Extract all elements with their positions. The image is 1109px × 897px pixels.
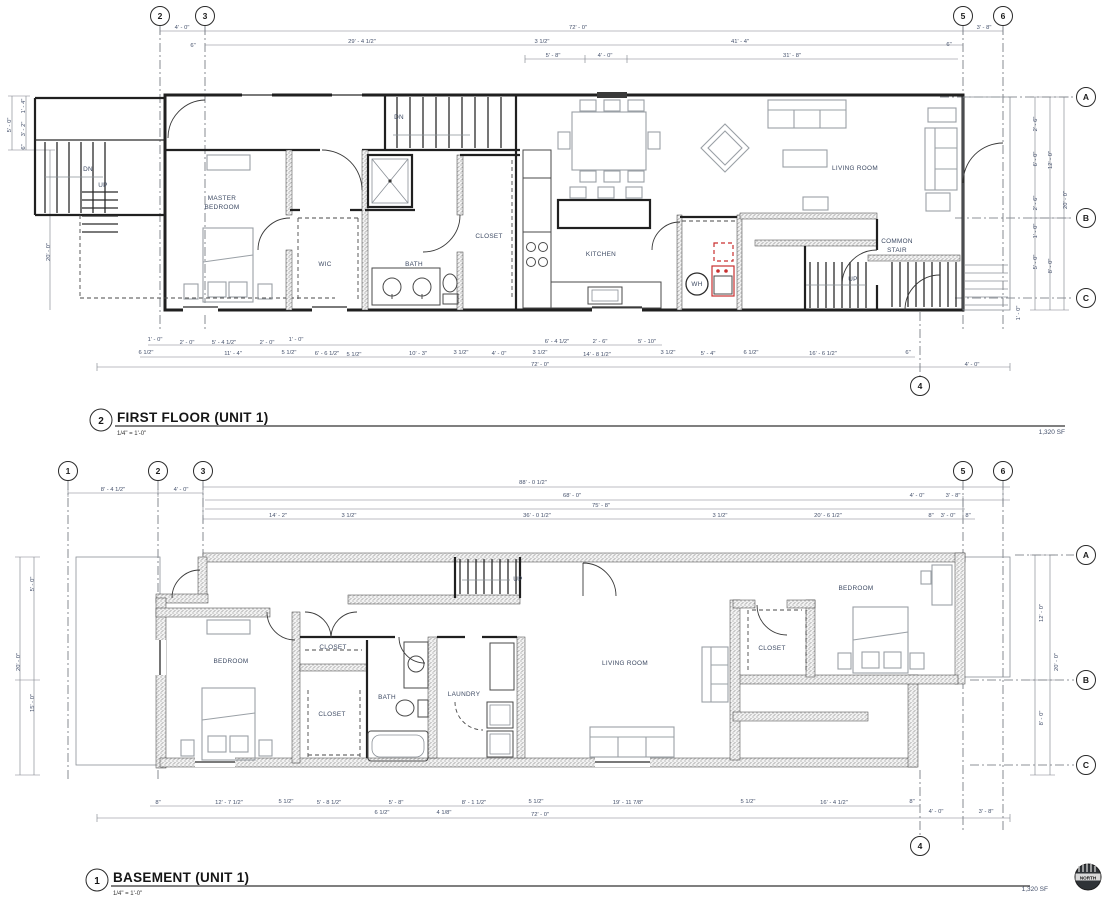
first_floor-dimension: 20' - 0" xyxy=(1063,191,1069,209)
grid-bubble-label-B: B xyxy=(1083,213,1089,223)
first_floor-dimension: 31' - 8" xyxy=(783,53,801,59)
basement-dimension: 20' - 6 1/2" xyxy=(814,513,842,519)
basement-dimension: 4' - 0" xyxy=(910,493,925,499)
first_floor-room-label: LIVING ROOM xyxy=(832,165,878,172)
first_floor-dimension: 5 1/2" xyxy=(347,352,362,358)
utility-room xyxy=(686,243,734,296)
plan-title: FIRST FLOOR (UNIT 1) xyxy=(117,410,269,425)
basement-room-label: BEDROOM xyxy=(213,658,248,665)
first_floor-dimension: 1' - 4" xyxy=(21,99,27,114)
stair-common-up xyxy=(806,262,866,308)
walls-exterior xyxy=(35,95,963,310)
first_floor-dimension: 11' - 4" xyxy=(224,351,242,357)
basement-dimension: 8' - 1 1/2" xyxy=(462,800,486,806)
first_floor-dimension: 72' - 0" xyxy=(531,362,549,368)
basement-dimension: 12' - 0" xyxy=(1039,604,1045,622)
stair-interior-dn xyxy=(393,97,501,148)
first_floor-dimension: 10' - 3" xyxy=(409,351,427,357)
first_floor-dimension: 8' - 0" xyxy=(1048,259,1054,274)
first_floor-dimension: 3' - 2" xyxy=(21,122,27,137)
first_floor-room-label: DN xyxy=(83,166,93,173)
first_floor-room-label: WIC xyxy=(318,261,331,268)
first_floor-dimension: 20' - 0" xyxy=(46,243,52,261)
bath-fixtures xyxy=(372,268,458,305)
dimension-lines xyxy=(8,27,1069,371)
first_floor-dimension: 41' - 4" xyxy=(731,39,749,45)
basement-dimension: 20' - 0" xyxy=(16,653,22,671)
basement-dimension: 3' - 8" xyxy=(979,809,994,815)
basement-dimension: 5 1/2" xyxy=(741,799,756,805)
basement-dimension: 3' - 8" xyxy=(946,493,961,499)
detail-number: 1 xyxy=(94,876,100,887)
bath-fixtures xyxy=(368,642,428,761)
first_floor-dimension: 5' - 4 1/2" xyxy=(212,340,236,346)
first_floor-dimension: 14' - 8 1/2" xyxy=(583,352,611,358)
basement-dimension: 68' - 0" xyxy=(563,493,581,499)
plan-scale: 1/4" = 1'-0" xyxy=(117,431,146,437)
basement-dimension: 5' - 8" xyxy=(389,800,404,806)
basement-title-block: 1 BASEMENT (UNIT 1) 1/4" = 1'-0" 1,320 S… xyxy=(86,869,1048,897)
first_floor-dimension: 6' - 0" xyxy=(1033,152,1039,167)
basement-room-label: CLOSET xyxy=(758,645,785,652)
plan-sheet: 4' - 0"72' - 0"3' - 8"6"29' - 4 1/2"3 1/… xyxy=(0,0,1109,897)
basement-dimension: 14' - 2" xyxy=(269,513,287,519)
basement-dimension: 8' - 4 1/2" xyxy=(101,487,125,493)
first_floor-dimension: 5' - 10" xyxy=(638,339,656,345)
first_floor-dimension: 2' - 6" xyxy=(1033,196,1039,211)
plan-scale: 1/4" = 1'-0" xyxy=(113,891,142,897)
plan-area: 1,320 SF xyxy=(1039,429,1065,436)
first_floor-dimension: 12' - 0" xyxy=(1048,151,1054,169)
basement-room-label: UP xyxy=(513,576,522,583)
first_floor-dimension: 3 1/2" xyxy=(535,39,550,45)
first_floor-dimension: 6" xyxy=(21,144,27,149)
first_floor-dimension: 72' - 0" xyxy=(569,25,587,31)
basement-dimension: 88' - 0 1/2" xyxy=(519,480,547,486)
plan-area: 1,320 SF xyxy=(1022,886,1048,893)
basement-dimension: 72' - 0" xyxy=(531,812,549,818)
kitchen xyxy=(523,100,661,308)
basement-dimension: 5' - 0" xyxy=(30,577,36,592)
first_floor-room-label: UP xyxy=(848,276,857,283)
basement-dimension: 3 1/2" xyxy=(342,513,357,519)
first_floor-dimension: 5' - 0" xyxy=(1033,255,1039,270)
first_floor-room-label: STAIR xyxy=(887,247,907,254)
first_floor-room-label: KITCHEN xyxy=(586,251,616,258)
basement-dimension: 4' - 0" xyxy=(929,809,944,815)
basement-dimension: 4' - 0" xyxy=(174,487,189,493)
first_floor-room-label: COMMON xyxy=(881,238,913,245)
grid-bubble-label-2: 2 xyxy=(158,11,163,21)
grid-bubble-label-2: 2 xyxy=(156,466,161,476)
stair-back-porch xyxy=(892,262,956,307)
first_floor-dimension: 5' - 4" xyxy=(701,351,716,357)
first_floor-room-label: UP xyxy=(98,182,107,189)
basement-dimension: 16' - 4 1/2" xyxy=(820,800,848,806)
first_floor-dimension: 3' - 8" xyxy=(977,25,992,31)
basement-dimension: 12' - 7 1/2" xyxy=(215,800,243,806)
basement-room-label: BATH xyxy=(378,694,396,701)
basement-dimension: 8" xyxy=(928,513,933,519)
grid-bubble-label-5: 5 xyxy=(961,466,966,476)
first_floor-room-label: BEDROOM xyxy=(204,204,239,211)
grid-bubble-label-C: C xyxy=(1083,760,1089,770)
first_floor-room-label: MASTER xyxy=(208,195,237,202)
first-floor-title-block: 2 FIRST FLOOR (UNIT 1) 1/4" = 1'-0" 1,32… xyxy=(90,409,1065,437)
living-room-furniture xyxy=(701,100,957,211)
basement-room-label: CLOSET xyxy=(319,644,346,651)
grid-bubble-label-6: 6 xyxy=(1001,11,1006,21)
first_floor-dimension: 4' - 0" xyxy=(492,351,507,357)
grid-bubble-label-5: 5 xyxy=(961,11,966,21)
first_floor-dimension: 2' - 6" xyxy=(1033,117,1039,132)
basement-dimension: 8" xyxy=(909,799,914,805)
first_floor-dimension: 6' - 4 1/2" xyxy=(545,339,569,345)
grid-bubble-label-1: 1 xyxy=(66,466,71,476)
basement-dimension: 3 1/2" xyxy=(713,513,728,519)
basement-room-label: BEDROOM xyxy=(838,585,873,592)
first_floor-dimension: 16' - 6 1/2" xyxy=(809,351,837,357)
basement-annotations: 8' - 4 1/2"4' - 0"88' - 0 1/2"68' - 0"4'… xyxy=(16,462,1096,856)
bedroom-right-furniture xyxy=(838,565,952,673)
grid-bubble-label-B: B xyxy=(1083,675,1089,685)
bedroom-left-furniture xyxy=(181,620,272,760)
basement-dimension: 8" xyxy=(965,513,970,519)
first_floor-dimension: 1' - 0" xyxy=(1016,306,1022,321)
grid-bubble-label-6: 6 xyxy=(1001,466,1006,476)
first_floor-dimension: 4' - 0" xyxy=(965,362,980,368)
first-floor-plan: 4' - 0"72' - 0"3' - 8"6"29' - 4 1/2"3 1/… xyxy=(7,7,1096,438)
grid-bubble-label-A: A xyxy=(1083,92,1089,102)
basement-room-label: LAUNDRY xyxy=(448,691,481,698)
first_floor-room-label: CLOSET xyxy=(475,233,502,240)
master-bedroom-furniture xyxy=(184,155,272,302)
grid-bubble-label-4: 4 xyxy=(918,381,923,391)
basement-dimension: 3' - 0" xyxy=(941,513,956,519)
plan-title: BASEMENT (UNIT 1) xyxy=(113,870,249,885)
shower xyxy=(368,155,412,207)
first_floor-dimension: 6' - 6 1/2" xyxy=(315,351,339,357)
stair-up xyxy=(460,559,516,594)
basement-dimension: 20' - 0" xyxy=(1054,653,1060,671)
first_floor-dimension: 4' - 0" xyxy=(598,53,613,59)
first_floor-dimension: 1' - 0" xyxy=(289,337,304,343)
basement-dimension: 5' - 8 1/2" xyxy=(317,800,341,806)
north-label: NORTH xyxy=(1080,875,1097,880)
grid-bubble-label-4: 4 xyxy=(918,841,923,851)
basement-dimension: 8' - 0" xyxy=(1039,711,1045,726)
first_floor-dimension: 2' - 0" xyxy=(180,340,195,346)
first_floor-room-label: WH xyxy=(691,281,702,288)
first_floor-dimension: 3 1/2" xyxy=(533,350,548,356)
grid-bubble-label-A: A xyxy=(1083,550,1089,560)
grid-bubble-label-C: C xyxy=(1083,293,1089,303)
basement-dimension: 75' - 8" xyxy=(592,503,610,509)
first_floor-dimension: 5' - 8" xyxy=(546,53,561,59)
first_floor-room-label: DN xyxy=(394,114,404,121)
basement-dimension: 19' - 11 7/8" xyxy=(613,800,643,806)
first_floor-dimension: 4' - 0" xyxy=(175,25,190,31)
grid-bubble-label-3: 3 xyxy=(203,11,208,21)
first_floor-dimension: 6" xyxy=(190,43,195,49)
north-arrow-icon: NORTH xyxy=(1075,864,1101,891)
basement-plan: 8' - 4 1/2"4' - 0"88' - 0 1/2"68' - 0"4'… xyxy=(15,462,1101,897)
basement-room-label: LIVING ROOM xyxy=(602,660,648,667)
first_floor-dimension: 5 1/2" xyxy=(282,350,297,356)
first_floor-dimension: 6" xyxy=(946,42,951,48)
first_floor-dimension: 2' - 0" xyxy=(260,340,275,346)
basement-dimension: 4 1/8" xyxy=(437,810,452,816)
first_floor-dimension: 6 1/2" xyxy=(744,350,759,356)
basement-dimension: 5 1/2" xyxy=(529,799,544,805)
detail-number: 2 xyxy=(98,416,104,427)
door-arcs xyxy=(168,100,1003,310)
basement-dimension: 8" xyxy=(155,800,160,806)
basement-dimension: 6 1/2" xyxy=(375,810,390,816)
first_floor-dimension: 3 1/2" xyxy=(661,350,676,356)
first_floor-dimension: 5' - 0" xyxy=(7,118,13,133)
first_floor-room-label: BATH xyxy=(405,261,423,268)
basement-dimension: 36' - 0 1/2" xyxy=(523,513,551,519)
first_floor-dimension: 29' - 4 1/2" xyxy=(348,39,376,45)
first_floor-dimension: 1' - 0" xyxy=(148,337,163,343)
first_floor-dimension: 3 1/2" xyxy=(454,350,469,356)
first_floor-dimension: 6" xyxy=(905,350,910,356)
drawing-canvas: 4' - 0"72' - 0"3' - 8"6"29' - 4 1/2"3 1/… xyxy=(0,0,1109,897)
laundry-fixtures xyxy=(455,643,514,757)
first_floor-dimension: 1' - 0" xyxy=(1033,224,1039,239)
basement-room-label: CLOSET xyxy=(318,711,345,718)
grid-bubble-label-3: 3 xyxy=(201,466,206,476)
walls-interior xyxy=(165,95,960,310)
first_floor-dimension: 6 1/2" xyxy=(139,350,154,356)
first_floor-dimension: 2' - 6" xyxy=(593,339,608,345)
basement-dimension: 15' - 0" xyxy=(30,694,36,712)
basement-dimension: 5 1/2" xyxy=(279,799,294,805)
